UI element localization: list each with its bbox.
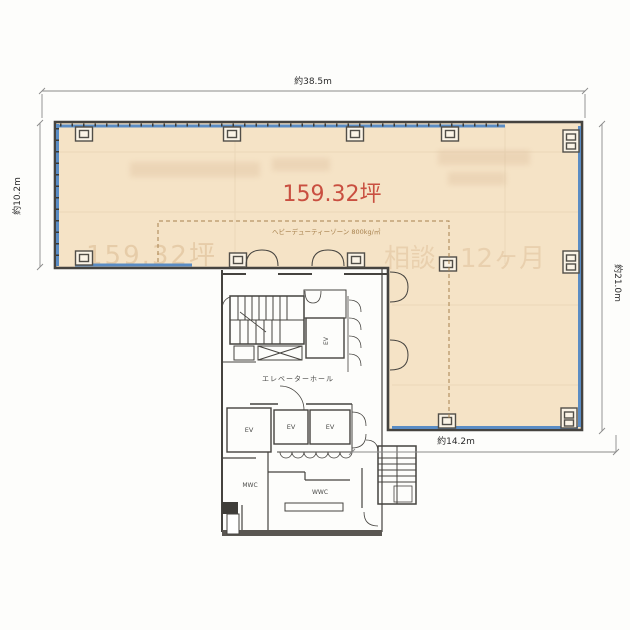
stairwell: [222, 296, 304, 344]
dimension-top: 約38.5m: [294, 75, 332, 87]
column: [347, 127, 364, 141]
heavy-duty-zone-label: ヘビーデューティーゾーン 800kg/㎡: [272, 227, 381, 236]
wwc-label: WWC: [312, 489, 328, 496]
elevator-hall-label: エレベーターホール: [262, 374, 334, 383]
closet-doors: [348, 296, 361, 372]
ev-label: EV: [323, 336, 330, 345]
core-pier-base: [227, 514, 239, 534]
ev-label: EV: [287, 423, 296, 431]
core-pier: [222, 502, 238, 514]
column: [348, 253, 365, 267]
column: [440, 257, 457, 271]
watermark-months: 12ヶ月: [460, 244, 545, 274]
column: [76, 127, 93, 141]
column: [439, 414, 456, 428]
core-bottom-wall: [222, 530, 382, 536]
dimension-right: 約21.0m: [612, 264, 624, 302]
column: [230, 253, 247, 267]
column: [76, 251, 93, 265]
column: [563, 251, 579, 273]
ev-label: EV: [326, 423, 335, 431]
floorplan-canvas: 159.32坪 相談 12ヶ月 ヘビーデューティーゾーン 800kg/㎡ 159…: [0, 0, 630, 630]
column: [224, 127, 241, 141]
external-stair: [366, 440, 416, 504]
toilet-rooms: [223, 452, 378, 530]
column: [561, 408, 577, 428]
dimension-bottom: 約14.2m: [437, 435, 475, 447]
dimension-left: 約10.2m: [11, 177, 23, 215]
ev-label: EV: [245, 426, 254, 434]
vestibule-door: [305, 291, 321, 303]
floorplan-svg: 159.32坪 相談 12ヶ月 ヘビーデューティーゾーン 800kg/㎡ 159…: [0, 0, 630, 630]
column: [442, 127, 459, 141]
floor-area-label: 159.32坪: [283, 182, 382, 207]
column: [563, 130, 579, 152]
duct-shaft: [222, 346, 302, 362]
watermark-negotiable: 相談: [384, 244, 436, 274]
ev-vestibule: [304, 290, 346, 318]
mwc-label: MWC: [242, 482, 257, 489]
